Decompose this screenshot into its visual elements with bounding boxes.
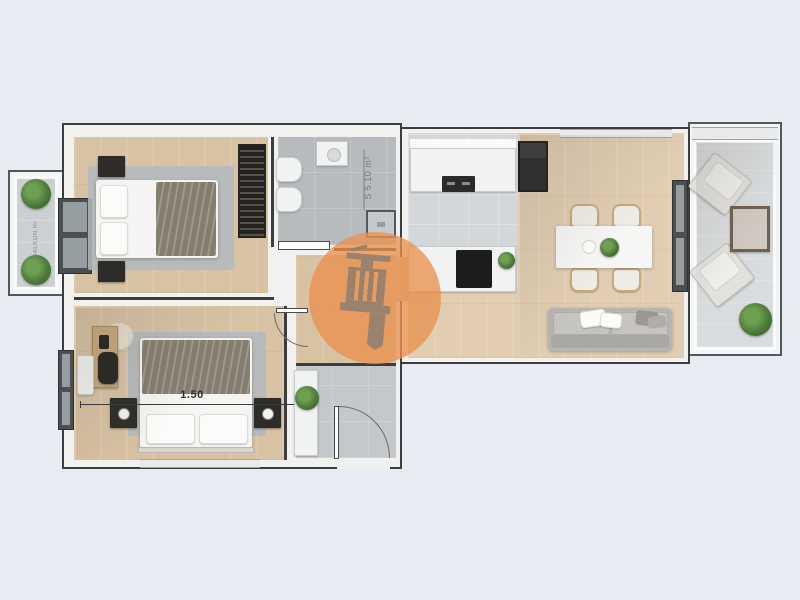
- sink-handle-icon: [447, 182, 455, 185]
- toilet-icon: [276, 157, 302, 182]
- dining-chair: [570, 204, 599, 228]
- right-balcony-railing-glass: [692, 127, 778, 140]
- dining-chair: [612, 268, 641, 292]
- window-glass: [62, 354, 70, 387]
- watermark-icon-body-slats: [346, 267, 387, 306]
- bedroom2-headboard: [138, 447, 254, 453]
- bedroom1-wardrobe: [238, 144, 266, 238]
- door-glass: [676, 238, 684, 285]
- dining-chair: [570, 268, 599, 292]
- door-glass: [676, 185, 684, 232]
- watermark-circle: [309, 232, 441, 364]
- dining-chair: [612, 204, 641, 228]
- cooktop-icon: [456, 250, 492, 288]
- tableware-icon: [582, 240, 596, 254]
- shower-drain-icon: [377, 222, 385, 227]
- sofa-backrest: [551, 335, 669, 348]
- island-plant-icon: [498, 252, 515, 269]
- sink-handle-icon: [462, 182, 470, 185]
- left-balcony-plant-top-icon: [21, 179, 51, 209]
- bathroom-area-label: S 5.10 m²: [363, 149, 375, 207]
- dimension-tick-left: [80, 401, 81, 408]
- bedroom1-bed: [96, 180, 218, 258]
- left-balcony-label: BALKON m²: [33, 209, 43, 269]
- dimension-line: [80, 404, 308, 405]
- desk-chair: [98, 352, 118, 384]
- living-top-window: [560, 129, 672, 138]
- bedroom2-bottom-window: [140, 459, 260, 468]
- living-balcony-sliding-door: [672, 180, 688, 292]
- door-glass: [63, 238, 87, 268]
- entry-door-opening: [337, 459, 390, 469]
- bathroom-sink: [316, 141, 348, 166]
- table-lamp-icon: [262, 408, 274, 420]
- bed-width-dimension-label: 1.50: [152, 389, 232, 401]
- watermark-icon-stem: [366, 313, 385, 351]
- bedroom1-nightstand-top: [98, 156, 125, 177]
- window-glass: [62, 392, 70, 425]
- bedroom1-nightstand-bottom: [98, 261, 125, 282]
- door-glass: [63, 202, 87, 232]
- bedroom1-pillow: [100, 222, 128, 255]
- sofa-pillow-gray: [647, 315, 666, 329]
- wall-bedroom1-bedroom2: [74, 297, 274, 300]
- table-lamp-icon: [118, 408, 130, 420]
- sofa: [548, 308, 672, 351]
- sink-bowl-icon: [327, 148, 341, 162]
- fridge-tall-unit: [518, 141, 548, 192]
- sofa-pillow: [599, 312, 622, 329]
- desk-lamp-icon: [99, 335, 109, 349]
- bidet-icon: [276, 187, 302, 212]
- tower-building-icon: [339, 243, 412, 352]
- bedroom1-blanket: [156, 182, 216, 256]
- bathroom-door-leaf: [278, 241, 330, 250]
- watermark-icon-flag: [351, 245, 367, 252]
- wall-bedroom1-bathroom: [271, 137, 274, 247]
- entry-cabinet: [294, 370, 318, 456]
- floorplan-canvas: BALKON m² S 5.10 m²: [0, 0, 800, 600]
- bedroom2-pillow: [146, 414, 195, 444]
- kitchen-sink-unit: [442, 176, 475, 192]
- bedroom2-blanket: [142, 340, 250, 394]
- balcony-side-table: [730, 206, 770, 252]
- bedroom2-radiator: [77, 355, 94, 395]
- entry-plant-icon: [295, 386, 319, 410]
- bedroom2-pillow: [199, 414, 248, 444]
- bedroom1-balcony-door: [58, 198, 92, 274]
- dining-table-plant-icon: [600, 238, 619, 257]
- right-balcony-plant-icon: [739, 303, 772, 336]
- bedroom1-pillow: [100, 185, 128, 218]
- bedroom2-window: [58, 350, 74, 430]
